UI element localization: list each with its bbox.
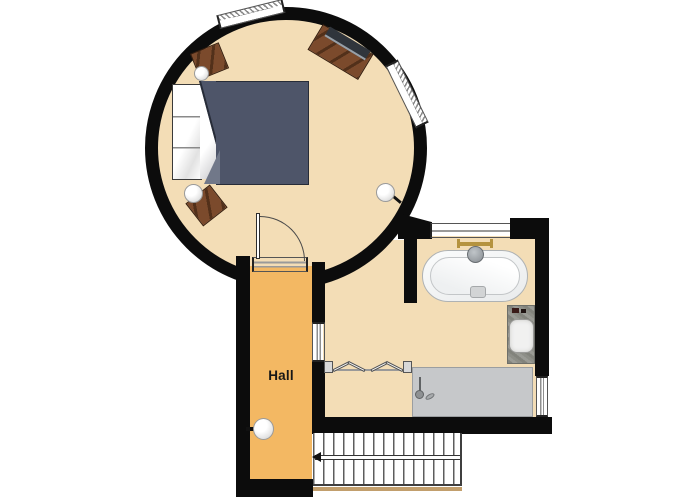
bathroom-right-wall xyxy=(535,218,549,376)
hall-left-wall xyxy=(236,256,250,497)
staircase-bottom-trim xyxy=(313,487,462,491)
faucet-handle-right xyxy=(490,239,493,248)
toilet-accessory-2 xyxy=(521,309,526,313)
lamp-top-nightstand xyxy=(194,66,209,81)
bifold-jamb-left xyxy=(324,361,333,373)
bathtub-drain xyxy=(470,286,486,298)
bed-frame-headboard xyxy=(172,84,202,180)
staircase-center-line xyxy=(315,455,460,460)
floor-plan: Hall xyxy=(0,0,700,500)
toilet xyxy=(509,319,534,353)
wall-light-hall xyxy=(253,418,274,440)
toilet-accessory-1 xyxy=(512,308,519,313)
bathroom-window-top xyxy=(430,223,512,238)
wall-light-bedroom xyxy=(376,183,395,202)
bathroom-window-right xyxy=(536,376,548,417)
hall-bottom-wall xyxy=(236,479,313,497)
faucet-body xyxy=(467,246,484,263)
bed-duvet xyxy=(216,81,309,185)
hall-window-right xyxy=(312,322,325,362)
bathroom-left-wall xyxy=(404,236,417,303)
bathroom-bottom-wall xyxy=(312,417,552,434)
hall-right-wall-upper xyxy=(312,262,325,322)
faucet-handle-left xyxy=(457,239,460,248)
staircase-direction-arrow xyxy=(312,452,321,462)
hall-label: Hall xyxy=(250,368,312,383)
bedroom-door-leaf xyxy=(256,213,260,259)
lamp-bottom-nightstand xyxy=(184,184,203,203)
shower-floor xyxy=(412,367,533,417)
bifold-track xyxy=(333,369,403,371)
bed-duvet-fold xyxy=(204,150,220,184)
shower-head xyxy=(415,390,424,399)
bifold-jamb-right xyxy=(403,361,412,373)
